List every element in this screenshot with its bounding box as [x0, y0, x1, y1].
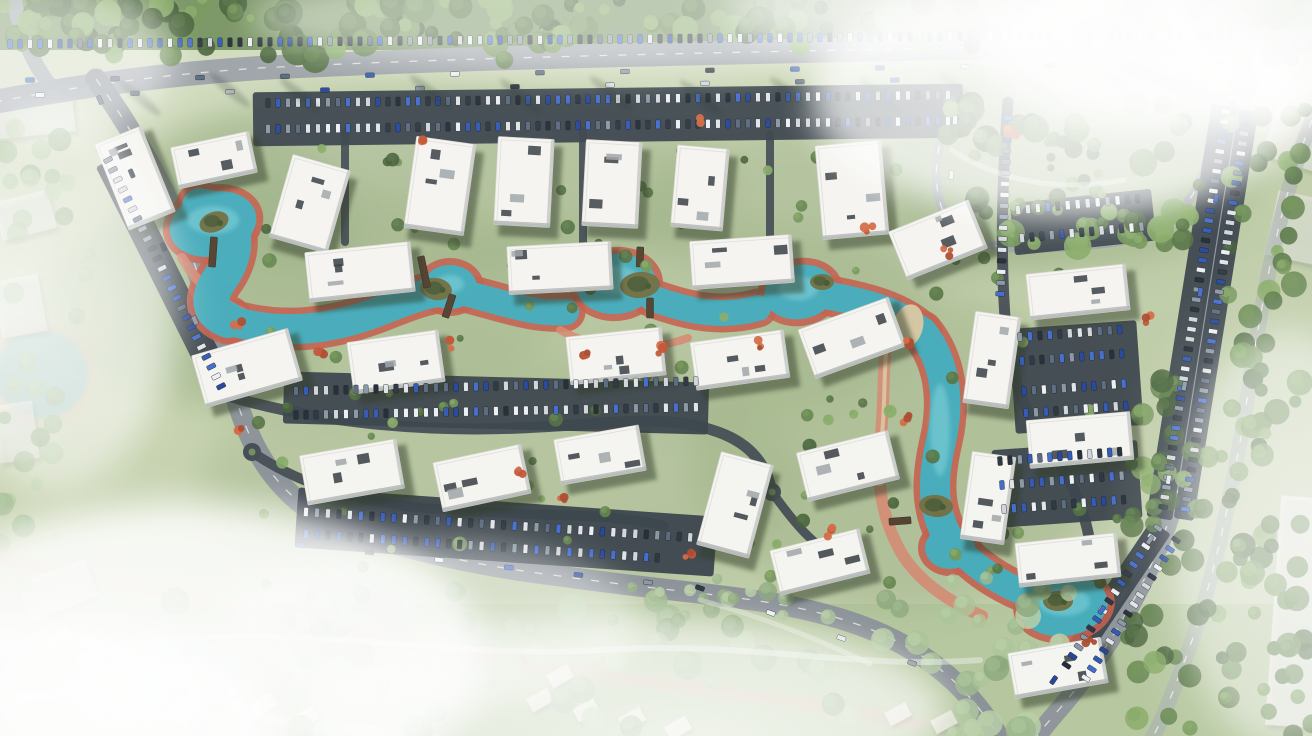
car — [683, 377, 688, 386]
car — [450, 72, 459, 77]
roof-detail — [604, 365, 613, 370]
car — [626, 94, 631, 103]
car — [1037, 331, 1042, 340]
car — [294, 410, 299, 419]
car — [1047, 330, 1052, 339]
car — [414, 383, 419, 392]
car — [626, 120, 631, 129]
car — [276, 98, 281, 107]
roof-detail — [616, 355, 624, 364]
car — [545, 523, 550, 532]
car — [178, 38, 183, 47]
car — [266, 124, 271, 133]
car — [673, 377, 678, 386]
car — [554, 405, 559, 414]
car — [776, 92, 781, 101]
car — [380, 512, 385, 521]
car — [504, 406, 509, 415]
car — [456, 96, 461, 105]
car — [655, 553, 660, 562]
car — [344, 409, 349, 418]
car — [374, 409, 379, 418]
roof-detail — [988, 359, 996, 366]
car — [1123, 401, 1128, 410]
car — [1107, 326, 1112, 335]
car — [1057, 329, 1062, 338]
flowering-tree — [1142, 313, 1150, 321]
car — [636, 94, 641, 103]
flowering-tree — [448, 345, 455, 352]
car — [997, 258, 1006, 263]
residential-building — [493, 137, 563, 239]
car — [1089, 473, 1094, 482]
car — [374, 384, 379, 393]
car — [523, 522, 528, 531]
car — [1089, 227, 1094, 236]
car — [664, 403, 669, 412]
car — [546, 121, 551, 130]
roof-detail — [511, 251, 523, 257]
car — [1041, 501, 1046, 510]
flowering-tree — [560, 493, 569, 502]
car — [424, 408, 429, 417]
car — [1049, 230, 1054, 239]
car — [766, 119, 771, 128]
car — [1047, 452, 1052, 461]
car — [1033, 408, 1038, 417]
car — [997, 269, 1006, 274]
car — [1071, 383, 1076, 392]
car — [576, 95, 581, 104]
car — [514, 406, 519, 415]
car — [346, 98, 351, 107]
car — [677, 532, 682, 541]
flowering-tree — [940, 245, 947, 252]
car — [656, 120, 661, 129]
car — [1091, 381, 1096, 390]
car — [646, 94, 651, 103]
car — [296, 124, 301, 133]
car — [1071, 499, 1076, 508]
flowering-tree — [658, 343, 668, 353]
car — [494, 407, 499, 416]
car — [716, 119, 721, 128]
flowering-tree — [860, 222, 870, 232]
car — [454, 407, 459, 416]
car — [258, 37, 263, 46]
car — [746, 93, 751, 102]
car — [512, 521, 517, 530]
car — [324, 386, 329, 395]
car — [603, 379, 608, 388]
lagoon-bridge — [889, 517, 911, 526]
car — [795, 79, 804, 84]
car — [1073, 405, 1078, 414]
car — [1117, 447, 1122, 456]
car — [596, 95, 601, 104]
car — [534, 523, 539, 532]
car — [474, 407, 479, 416]
car — [404, 408, 409, 417]
car — [578, 525, 583, 534]
car — [304, 410, 309, 419]
car — [564, 380, 569, 389]
roof-detail — [1082, 540, 1093, 546]
car — [1029, 232, 1034, 241]
roof-detail — [976, 367, 988, 377]
car — [504, 381, 509, 390]
car — [303, 507, 308, 516]
car — [996, 280, 1005, 285]
car — [554, 380, 559, 389]
car — [376, 123, 381, 132]
car — [466, 122, 471, 131]
car — [736, 119, 741, 128]
roof-detail — [589, 199, 603, 209]
car — [464, 382, 469, 391]
car — [386, 97, 391, 106]
car — [1129, 223, 1134, 232]
car — [1063, 405, 1068, 414]
car — [416, 123, 421, 132]
car — [606, 120, 611, 129]
car — [1059, 476, 1064, 485]
car — [746, 119, 751, 128]
car — [484, 407, 489, 416]
car — [466, 96, 471, 105]
car — [334, 410, 339, 419]
flowering-tree — [238, 425, 245, 432]
roof-detail — [1026, 573, 1036, 580]
car — [564, 405, 569, 414]
car — [426, 123, 431, 132]
car — [1117, 325, 1122, 334]
flowering-tree — [754, 336, 763, 345]
car — [999, 225, 1008, 230]
car — [1061, 500, 1066, 509]
car — [688, 533, 693, 542]
car — [574, 380, 579, 389]
car — [584, 405, 589, 414]
car — [1083, 404, 1088, 413]
residential-building — [1026, 263, 1140, 331]
car — [716, 93, 721, 102]
car — [644, 404, 649, 413]
car — [384, 384, 389, 393]
car — [404, 384, 409, 393]
car — [536, 121, 541, 130]
car — [622, 551, 627, 560]
car — [326, 98, 331, 107]
car — [796, 118, 801, 127]
car — [326, 124, 331, 133]
car — [545, 546, 550, 555]
car — [424, 515, 429, 524]
flowering-tree — [237, 317, 246, 326]
roof-detail — [847, 215, 855, 220]
car — [1031, 502, 1036, 511]
car — [294, 386, 299, 395]
roof-detail — [999, 326, 1009, 335]
car — [566, 121, 571, 130]
car — [693, 377, 698, 386]
car — [434, 383, 439, 392]
car — [325, 509, 330, 518]
car — [396, 97, 401, 106]
haze-cloud — [0, 0, 175, 140]
residential-building — [305, 241, 426, 314]
flowering-tree — [828, 524, 836, 532]
car — [694, 403, 699, 412]
car — [1099, 473, 1104, 482]
car — [402, 514, 407, 523]
car — [444, 408, 449, 417]
flowering-tree — [945, 252, 953, 260]
car — [316, 124, 321, 133]
car — [1121, 495, 1126, 504]
car — [633, 552, 638, 561]
car — [1019, 233, 1024, 242]
car — [1053, 406, 1058, 415]
car — [365, 73, 374, 78]
car — [1113, 402, 1118, 411]
car — [286, 124, 291, 133]
roof-detail — [357, 453, 371, 465]
car — [336, 98, 341, 107]
car — [1093, 403, 1098, 412]
car — [1069, 229, 1074, 238]
car — [266, 98, 271, 107]
car — [676, 120, 681, 129]
car — [208, 38, 213, 47]
car — [544, 380, 549, 389]
car — [506, 96, 511, 105]
car — [306, 124, 311, 133]
car — [806, 118, 811, 127]
car — [1099, 226, 1104, 235]
car — [684, 403, 689, 412]
car — [1011, 504, 1016, 513]
car — [476, 96, 481, 105]
car — [1043, 407, 1048, 416]
flowering-tree — [313, 347, 322, 356]
car — [1027, 454, 1032, 463]
car — [364, 409, 369, 418]
car — [526, 121, 531, 130]
flowering-tree — [757, 345, 762, 350]
roof-detail — [532, 275, 540, 279]
car — [636, 120, 641, 129]
car — [556, 546, 561, 555]
car — [414, 408, 419, 417]
car — [534, 406, 539, 415]
car — [446, 517, 451, 526]
roof-detail — [705, 261, 721, 268]
car — [218, 38, 223, 47]
car — [324, 410, 329, 419]
car — [1059, 353, 1064, 362]
car — [1097, 449, 1102, 458]
roof-detail — [866, 193, 881, 202]
car — [424, 383, 429, 392]
car — [457, 517, 462, 526]
flowering-tree — [696, 114, 704, 122]
car — [248, 38, 253, 47]
car — [534, 381, 539, 390]
car — [556, 524, 561, 533]
car — [1057, 452, 1062, 461]
residential-building — [689, 234, 804, 301]
car — [490, 520, 495, 529]
car — [566, 95, 571, 104]
car — [304, 386, 309, 395]
car — [406, 123, 411, 132]
roof-detail — [430, 149, 441, 160]
flowering-tree — [903, 414, 911, 422]
car — [676, 94, 681, 103]
flowering-tree — [683, 554, 689, 560]
car — [314, 410, 319, 419]
car — [646, 120, 651, 129]
car — [1051, 384, 1056, 393]
car — [1049, 476, 1054, 485]
car — [1087, 449, 1092, 458]
car — [614, 404, 619, 413]
car — [613, 379, 618, 388]
car — [454, 382, 459, 391]
car — [546, 95, 551, 104]
flowering-tree — [1091, 639, 1097, 645]
car — [1001, 504, 1006, 513]
car — [336, 124, 341, 133]
roof-detail — [333, 472, 343, 483]
car — [634, 404, 639, 413]
flowering-tree — [824, 532, 832, 540]
car — [726, 93, 731, 102]
roof-detail — [991, 515, 1001, 522]
car — [586, 121, 591, 130]
car — [354, 409, 359, 418]
car — [1023, 408, 1028, 417]
residential-building — [507, 241, 623, 306]
car — [1077, 328, 1082, 337]
car — [1059, 230, 1064, 239]
car — [616, 120, 621, 129]
car — [364, 385, 369, 394]
car — [496, 122, 501, 131]
roof-detail — [1091, 287, 1105, 295]
car — [776, 118, 781, 127]
car — [1109, 225, 1114, 234]
car — [366, 97, 371, 106]
car — [1019, 356, 1024, 365]
car — [476, 122, 481, 131]
car — [596, 121, 601, 130]
car — [600, 549, 605, 558]
car — [1021, 503, 1026, 512]
car — [496, 96, 501, 105]
car — [756, 119, 761, 128]
car — [674, 403, 679, 412]
car — [999, 480, 1004, 489]
car — [654, 403, 659, 412]
car — [1079, 352, 1084, 361]
car — [1109, 350, 1114, 359]
car — [198, 38, 203, 47]
car — [346, 124, 351, 133]
car — [633, 378, 638, 387]
flowering-tree — [584, 349, 591, 356]
roof-detail — [742, 367, 750, 377]
car — [394, 408, 399, 417]
car — [396, 123, 401, 132]
haze-cloud — [220, 540, 640, 710]
car — [386, 123, 391, 132]
car — [444, 383, 449, 392]
car — [1017, 455, 1022, 464]
car — [1091, 497, 1096, 506]
car — [1119, 224, 1124, 233]
car — [434, 408, 439, 417]
car — [622, 528, 627, 537]
roof-detail — [528, 146, 541, 156]
flowering-tree — [869, 222, 877, 230]
car — [1019, 479, 1024, 488]
car — [416, 97, 421, 106]
car — [593, 379, 598, 388]
car — [456, 122, 461, 131]
car — [556, 121, 561, 130]
car — [394, 384, 399, 393]
car — [314, 508, 319, 517]
roof-detail — [335, 264, 343, 273]
residential-building — [402, 136, 485, 248]
car — [468, 518, 473, 527]
car — [1101, 380, 1106, 389]
roof-detail — [501, 210, 511, 217]
car — [506, 122, 511, 131]
car — [1111, 380, 1116, 389]
car — [644, 552, 649, 561]
flowering-tree — [418, 135, 427, 144]
car — [997, 456, 1002, 465]
roof-detail — [774, 245, 788, 255]
car — [486, 96, 491, 105]
car — [1109, 472, 1114, 481]
car — [486, 122, 491, 131]
car — [1107, 448, 1112, 457]
car — [366, 123, 371, 132]
car — [1021, 386, 1026, 395]
car — [1067, 329, 1072, 338]
car — [376, 97, 381, 106]
car — [479, 519, 484, 528]
car — [643, 378, 648, 387]
car — [544, 406, 549, 415]
car — [576, 121, 581, 130]
car — [1039, 231, 1044, 240]
car — [1111, 496, 1116, 505]
car — [1037, 453, 1042, 462]
car — [666, 120, 671, 129]
car — [1081, 498, 1086, 507]
car — [1061, 383, 1066, 392]
car — [1103, 402, 1108, 411]
car — [336, 510, 341, 519]
car — [666, 94, 671, 103]
car — [484, 382, 489, 391]
car — [604, 404, 609, 413]
